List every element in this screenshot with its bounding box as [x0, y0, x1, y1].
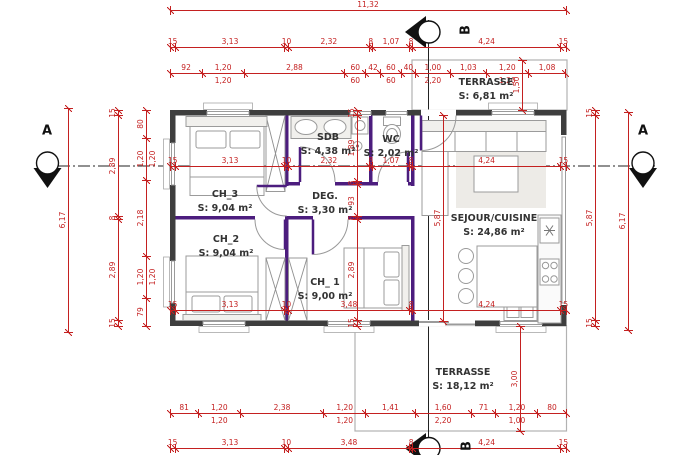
dim-chain-left-total: 6,17	[68, 108, 69, 332]
room-label-ch2: CH_2 S: 9,04 m²	[199, 233, 254, 262]
section-letter-b-top: B	[459, 25, 474, 35]
room-area: S: 6,81 m²	[459, 90, 514, 104]
room-area: S: 24,86 m²	[463, 226, 524, 240]
room-name: WC	[382, 133, 399, 147]
section-marker-a-left	[34, 152, 62, 188]
room-name: SEJOUR/CUISINE	[451, 212, 537, 226]
dim-chain-left-axes: 152,8982,8915	[118, 110, 119, 326]
room-label-ch1: CH_ 1 S: 9,00 m²	[298, 276, 353, 305]
sofa-and-rug	[422, 121, 546, 216]
dim-chain-bottom-axes: 153,13103,4884,2415	[170, 448, 566, 449]
dim-chain-right-total: 6,17	[628, 112, 629, 330]
section-marker-a-right	[629, 152, 657, 188]
dim-chain-middle-vertical: 151,8989382,8915	[357, 110, 358, 326]
room-name: TERRASSE	[459, 76, 514, 90]
fridge-icon	[540, 218, 559, 243]
room-name: CH_2	[213, 233, 239, 247]
dim-chain-terrasse-bottom-depth: 3,00	[520, 326, 521, 431]
dim-chain-sejour-height: 5,87	[443, 115, 444, 321]
dim-chain-top-openings: 921,201,202,886060426060401,002,201,031,…	[170, 73, 566, 74]
room-name: TERRASSE	[436, 366, 491, 380]
dim-chain-left-openings: 801,201,202,181,201,2079	[146, 110, 147, 326]
dim-chain-lower-axes: 153,13103,4884,2415	[170, 310, 566, 311]
dim-chain-terrasse-top-depth: 1,50	[522, 60, 523, 110]
stove-icon	[540, 259, 559, 285]
room-label-ch3: CH_3 S: 9,04 m²	[198, 188, 253, 217]
room-area: S: 9,00 m²	[298, 290, 353, 304]
room-area: S: 18,12 m²	[432, 380, 493, 394]
dim-chain-bottom-openings: 811,201,202,381,201,201,411,602,20711,20…	[170, 413, 566, 414]
room-label-deg: DEG. S: 3,30 m²	[298, 190, 353, 219]
room-area: S: 3,30 m²	[298, 204, 353, 218]
room-label-terrasse-top: TERRASSE S: 6,81 m²	[459, 76, 514, 105]
room-area: S: 9,04 m²	[199, 247, 254, 261]
room-area: S: 9,04 m²	[198, 202, 253, 216]
room-label-terrasse-bottom: TERRASSE S: 18,12 m²	[432, 366, 493, 395]
floor-plan-canvas: 11,32 153,13102,3281,0784,2415 921,201,2…	[0, 0, 700, 455]
dim-chain-total-width-top: 11,32	[170, 10, 566, 11]
room-name: DEG.	[312, 190, 338, 204]
island-and-stools	[459, 246, 538, 307]
room-label-sejour: SEJOUR/CUISINE S: 24,86 m²	[451, 212, 537, 241]
room-name: CH_3	[212, 188, 238, 202]
section-letter-a-left: A	[42, 124, 52, 139]
room-name: SDB	[317, 131, 339, 145]
room-area: S: 2,02 m²	[364, 147, 419, 161]
room-name: CH_ 1	[310, 276, 340, 290]
room-label-sdb: SDB S: 4,38 m²	[301, 131, 356, 160]
dim-chain-mid-axes: 153,13102,3281,0784,2415	[170, 166, 566, 167]
section-letter-a-right: A	[638, 124, 648, 139]
section-letter-b-bottom: B	[460, 441, 475, 451]
room-label-wc: WC S: 2,02 m²	[364, 133, 419, 162]
dim-chain-right-axes: 155,8715	[595, 110, 596, 326]
room-area: S: 4,38 m²	[301, 145, 356, 159]
dim-chain-top-axes: 153,13102,3281,0784,2415	[170, 47, 566, 48]
